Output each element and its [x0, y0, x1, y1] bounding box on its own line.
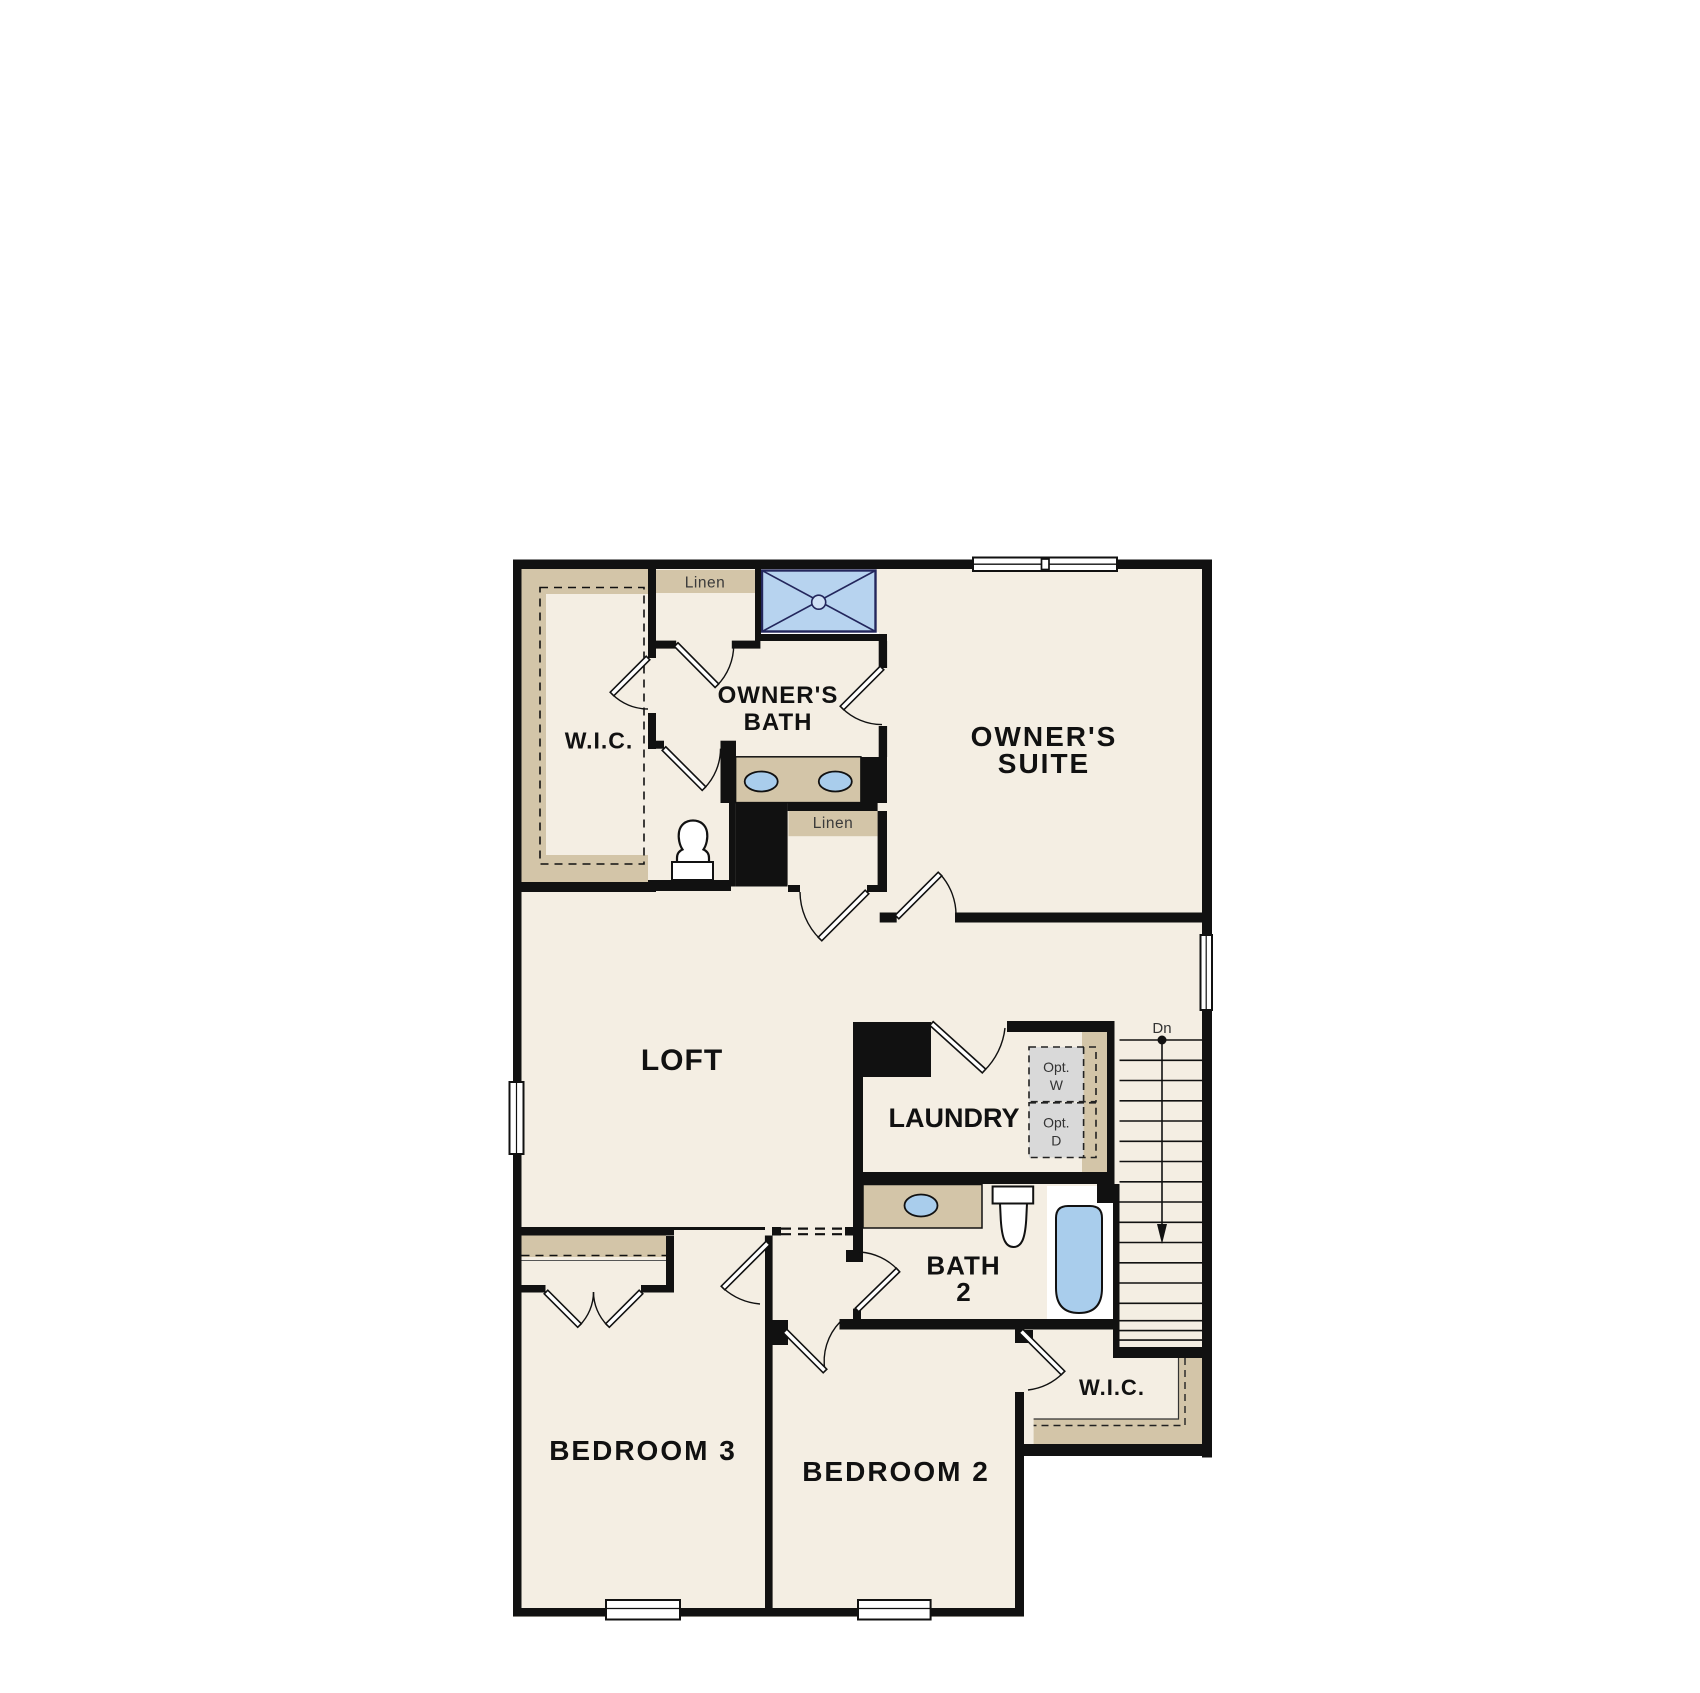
svg-text:BATH: BATH	[744, 709, 813, 736]
svg-text:Dn: Dn	[1152, 1020, 1171, 1037]
svg-text:2: 2	[956, 1277, 970, 1307]
svg-text:LAUNDRY: LAUNDRY	[889, 1103, 1020, 1133]
svg-text:SUITE: SUITE	[998, 748, 1090, 779]
svg-text:D: D	[1051, 1133, 1061, 1149]
svg-text:Opt.: Opt.	[1043, 1059, 1069, 1075]
svg-text:LOFT: LOFT	[641, 1044, 723, 1077]
svg-text:Linen: Linen	[813, 815, 853, 832]
svg-text:BEDROOM 3: BEDROOM 3	[549, 1435, 737, 1466]
svg-text:W: W	[1050, 1077, 1064, 1093]
svg-text:Opt.: Opt.	[1043, 1115, 1069, 1131]
svg-text:BATH: BATH	[926, 1251, 1000, 1281]
svg-text:W.I.C.: W.I.C.	[1079, 1375, 1145, 1400]
svg-text:Linen: Linen	[685, 575, 725, 592]
svg-text:BEDROOM 2: BEDROOM 2	[802, 1456, 990, 1487]
svg-text:W.I.C.: W.I.C.	[565, 728, 634, 754]
svg-text:OWNER'S: OWNER'S	[718, 682, 839, 709]
